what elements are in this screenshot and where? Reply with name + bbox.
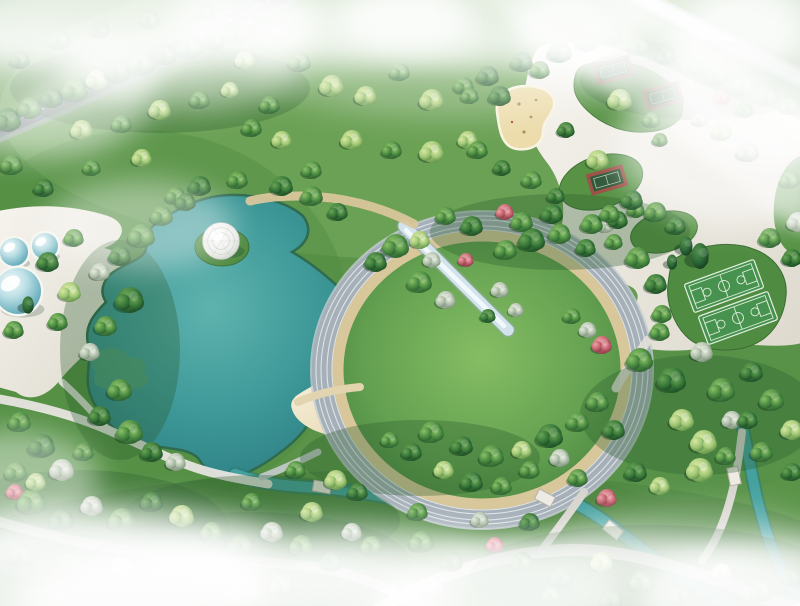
park-aerial-rendering	[0, 0, 800, 606]
render-canvas	[0, 0, 800, 606]
